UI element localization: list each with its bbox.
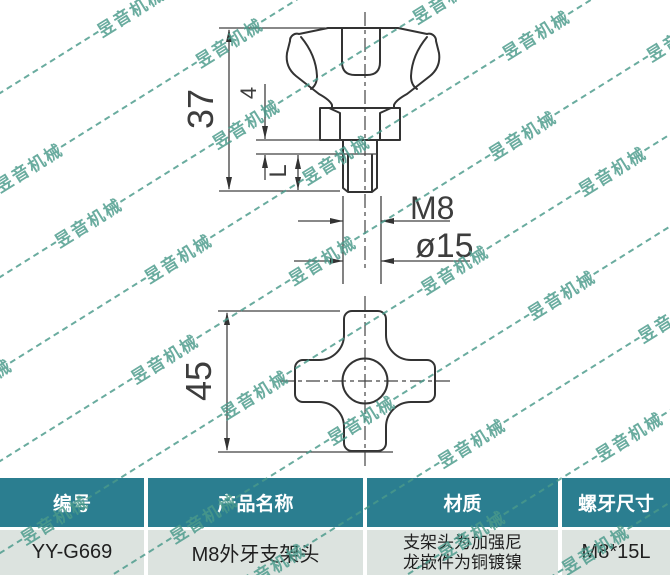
spec-table: 编号 产品名称 材质 螺牙尺寸 YY-G669 M8外牙支架头 支架头为加强尼 … [0,478,670,575]
dim-label-overall-height: 37 [180,89,221,129]
product-spec-sheet: 37 4 L M8 ø15 [0,0,670,575]
cell-material-line2: 龙嵌件为铜镀镍 [403,553,522,573]
cell-material: 支架头为加强尼 龙嵌件为铜镀镍 [367,530,562,575]
column-header-material: 材质 [367,478,562,527]
cell-code: YY-G669 [0,530,148,575]
column-header-thread-size: 螺牙尺寸 [562,478,670,527]
dim-label-boss-diameter: ø15 [415,227,474,265]
spec-table-header-row: 编号 产品名称 材质 螺牙尺寸 [0,478,670,527]
top-view-drawing [280,296,450,468]
dim-label-neck-height: 4 [236,87,261,99]
cell-thread-size: M8*15L [562,530,670,575]
cell-material-line1: 支架头为加强尼 [403,533,522,553]
technical-drawing: 37 4 L M8 ø15 [0,0,670,470]
dim-label-thread-length: L [265,164,292,177]
dim-label-knob-width: 45 [178,361,219,401]
dim-label-thread-spec: M8 [410,190,454,226]
spec-table-data-row: YY-G669 M8外牙支架头 支架头为加强尼 龙嵌件为铜镀镍 M8*15L [0,530,670,575]
column-header-product-name: 产品名称 [148,478,367,527]
side-view-dimensions: 37 4 L M8 ø15 [180,28,474,284]
column-header-code: 编号 [0,478,148,527]
cell-product-name: M8外牙支架头 [148,530,367,575]
